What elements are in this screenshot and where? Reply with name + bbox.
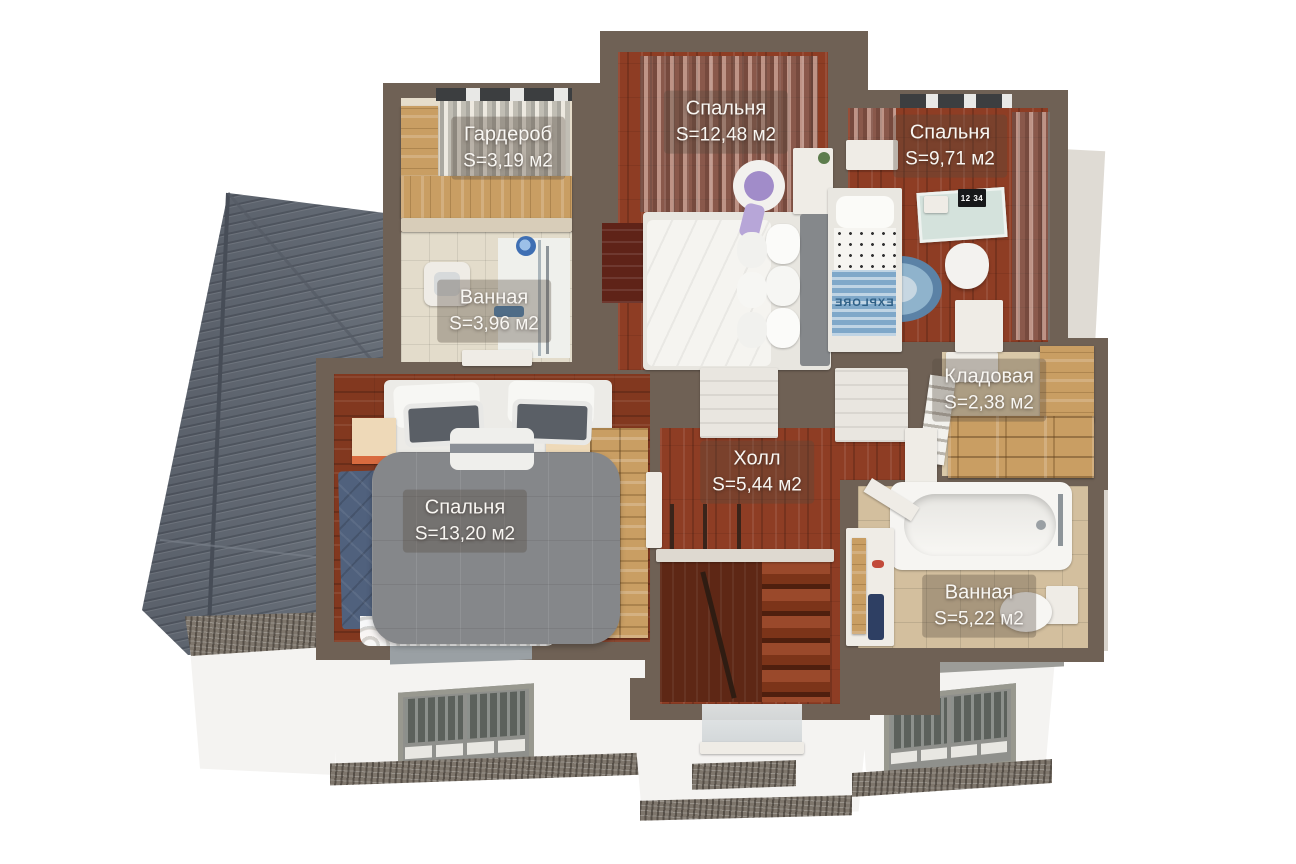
room-label-bedroom-master: Спальня S=13,20 м2 <box>403 490 527 553</box>
window-panel <box>405 745 432 759</box>
room-area: S=3,19 м2 <box>463 149 553 175</box>
room-area: S=3,96 м2 <box>449 312 539 338</box>
floor-plan-scene: EXPLORE 12 34 Гардероб S=3, <box>0 0 1296 864</box>
bed-large-pillow <box>766 266 800 306</box>
hall-door-panel <box>700 368 778 438</box>
window-panel <box>467 741 494 755</box>
room-label-hall: Холл S=5,44 м2 <box>700 441 814 504</box>
room-area: S=5,44 м2 <box>712 473 802 499</box>
window-panel <box>921 747 947 761</box>
window-panel <box>436 743 463 757</box>
bed-large-pillow <box>737 312 767 348</box>
room-name: Ванная <box>934 580 1024 607</box>
plant <box>818 152 830 164</box>
towel-ladder <box>852 538 866 634</box>
window-pane <box>467 691 525 739</box>
room-name: Спальня <box>676 96 776 123</box>
stone-trim-bay <box>692 760 796 790</box>
room-area: S=12,48 м2 <box>676 123 776 149</box>
stone-trim-bay-base <box>640 795 852 821</box>
kids-dresser <box>955 300 1003 352</box>
room-name: Кладовая <box>944 364 1034 391</box>
room-label-bathroom-big: Ванная S=5,22 м2 <box>922 575 1036 638</box>
kids-shelf <box>846 140 898 170</box>
bedroom-kids-window <box>900 94 1012 108</box>
kids-bed-pillow <box>836 196 894 228</box>
room-label-bedroom-kids: Спальня S=9,71 м2 <box>893 115 1007 178</box>
stair-railing-posts <box>670 504 674 550</box>
staircase <box>762 562 830 702</box>
master-door <box>646 472 662 548</box>
bed-large-pillow <box>766 224 800 264</box>
bath-small-door <box>462 350 532 366</box>
window-panel <box>981 741 1007 755</box>
window-panel <box>951 744 977 758</box>
room-area: S=13,20 м2 <box>415 522 515 548</box>
shower-mixer <box>1058 494 1063 546</box>
room-area: S=2,38 м2 <box>944 391 1034 417</box>
window-panel <box>891 750 917 764</box>
soap-dish <box>872 560 884 568</box>
room-area: S=5,22 м2 <box>934 607 1024 633</box>
room-name: Спальня <box>905 120 995 147</box>
storage-shelf-bottom <box>948 416 1094 478</box>
bedroom-large-wardrobe <box>602 223 646 303</box>
room-name: Ванная <box>449 285 539 312</box>
wardrobe-window-frame <box>436 88 572 101</box>
bed-large-pillow <box>766 308 800 348</box>
stair-railing-posts <box>703 504 707 550</box>
desk-monitor: 12 34 <box>958 189 986 207</box>
room-label-storage: Кладовая S=2,38 м2 <box>932 359 1046 422</box>
desk-monitor-text: 12 34 <box>961 194 984 203</box>
washer-door <box>516 236 536 256</box>
bed-large-pillow <box>737 232 767 268</box>
room-label-bathroom-small: Ванная S=3,96 м2 <box>437 280 551 343</box>
kids-bed-sheet-dotted <box>834 228 896 270</box>
room-area: S=9,71 м2 <box>905 147 995 173</box>
window-pane <box>951 691 1007 743</box>
towel <box>868 594 884 640</box>
room-label-bedroom-large: Спальня S=12,48 м2 <box>664 91 788 154</box>
bathtub-drain <box>1036 520 1046 530</box>
bed-large-pillow <box>737 272 767 308</box>
room-name: Спальня <box>415 495 515 522</box>
window-panel <box>498 739 525 753</box>
storage-shelf-right <box>1040 346 1094 422</box>
room-name: Гардероб <box>463 122 553 149</box>
stair-divider <box>656 549 834 562</box>
stair-landing <box>660 562 762 702</box>
wardrobe-shelf-front <box>401 218 572 232</box>
bathtub-basin <box>904 494 1056 556</box>
wardrobe-shelf-bottom <box>401 176 572 218</box>
bay-window-sill <box>700 742 804 754</box>
room-name: Холл <box>712 446 802 473</box>
desk-laptop <box>924 196 948 213</box>
master-pillow-accent <box>450 428 534 470</box>
bedroom-kids-curtain-right <box>1012 112 1050 340</box>
window-pane <box>405 695 463 743</box>
blanket-text: EXPLORE <box>834 297 894 309</box>
kids-bed-blanket: EXPLORE <box>832 270 896 336</box>
bed-large-headboard <box>800 214 830 366</box>
desk-chair <box>945 243 989 289</box>
papasan-chair <box>733 160 785 212</box>
hall-door-panel <box>835 368 908 442</box>
room-label-wardrobe: Гардероб S=3,19 м2 <box>451 117 565 180</box>
stair-railing-posts <box>737 504 741 550</box>
